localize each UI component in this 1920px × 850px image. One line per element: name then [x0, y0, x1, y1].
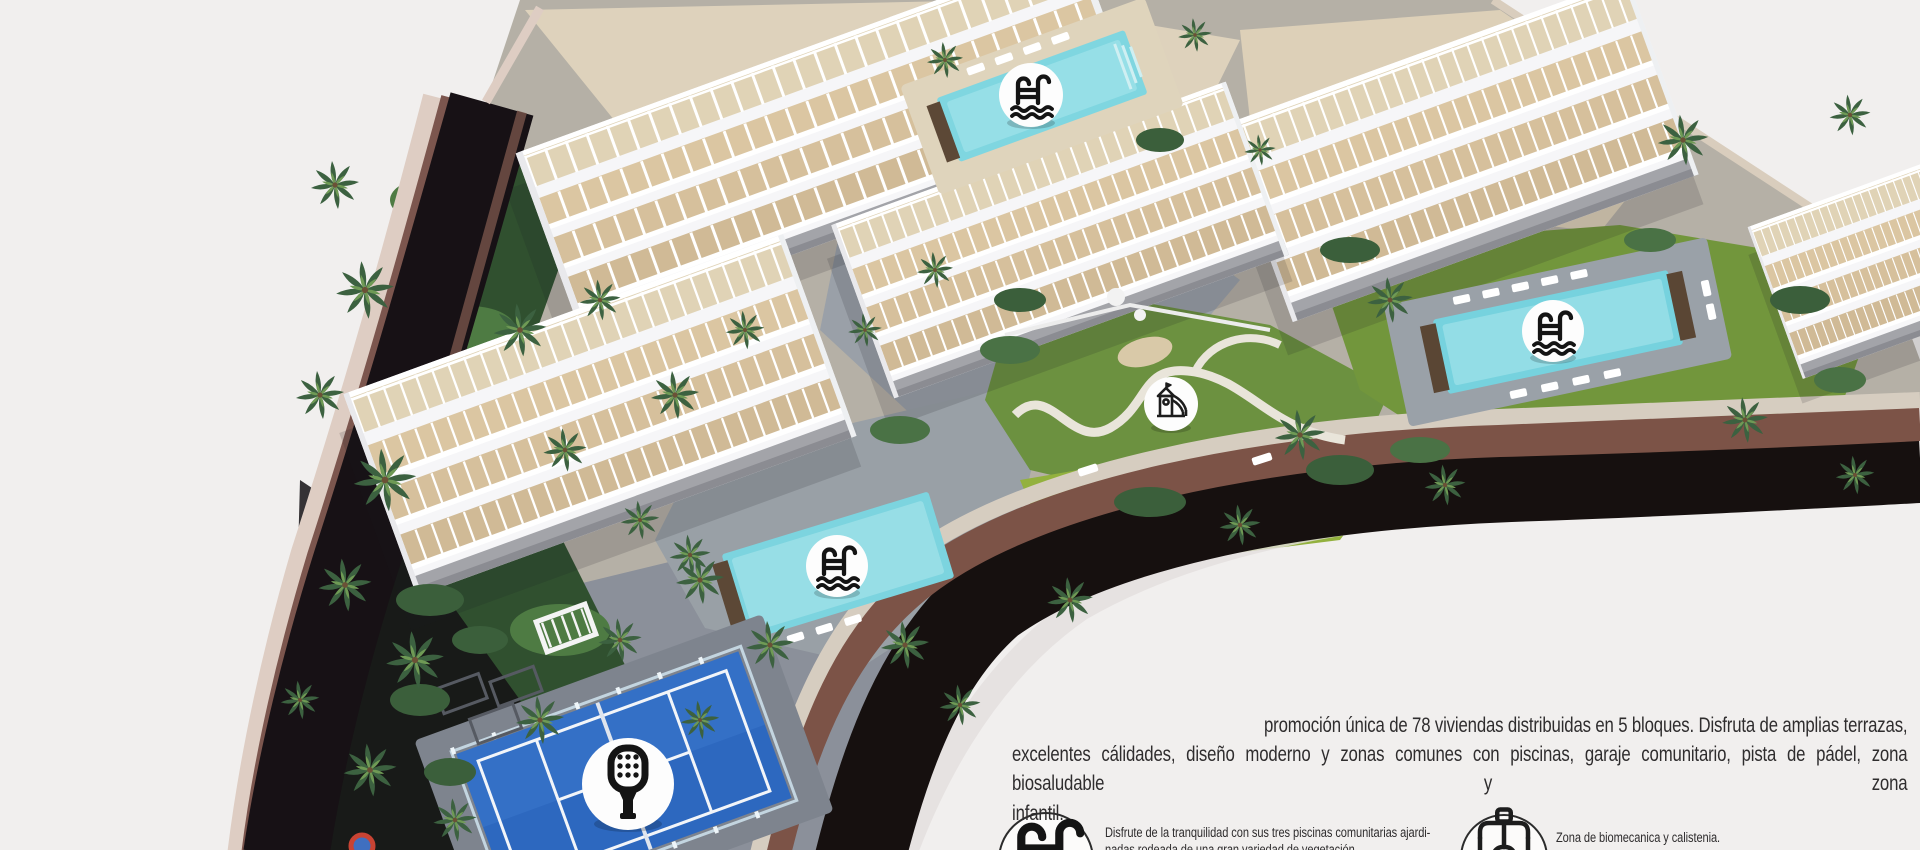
feature-text-pools: Disfrute de la tranquilidad con sus tres… [1105, 824, 1458, 850]
feature-text-line: Zona de biomecanica y calistenia. [1556, 829, 1909, 846]
playground-toy [351, 835, 373, 850]
feature-text-biomechanics: Zona de biomecanica y calistenia. [1556, 829, 1909, 846]
promo-page: promoción única de 78 viviendas distribu… [0, 0, 1920, 850]
description-paragraph: promoción única de 78 viviendas distribu… [1012, 711, 1907, 828]
feature-text-line: Disfrute de la tranquilidad con sus tres… [1105, 824, 1458, 841]
description-line: excelentes cálidades, diseño moderno y z… [1012, 740, 1907, 798]
description-line: promoción única de 78 viviendas distribu… [1012, 711, 1907, 740]
feature-text-line: nadas rodeada de una gran variedad de ve… [1105, 841, 1458, 850]
